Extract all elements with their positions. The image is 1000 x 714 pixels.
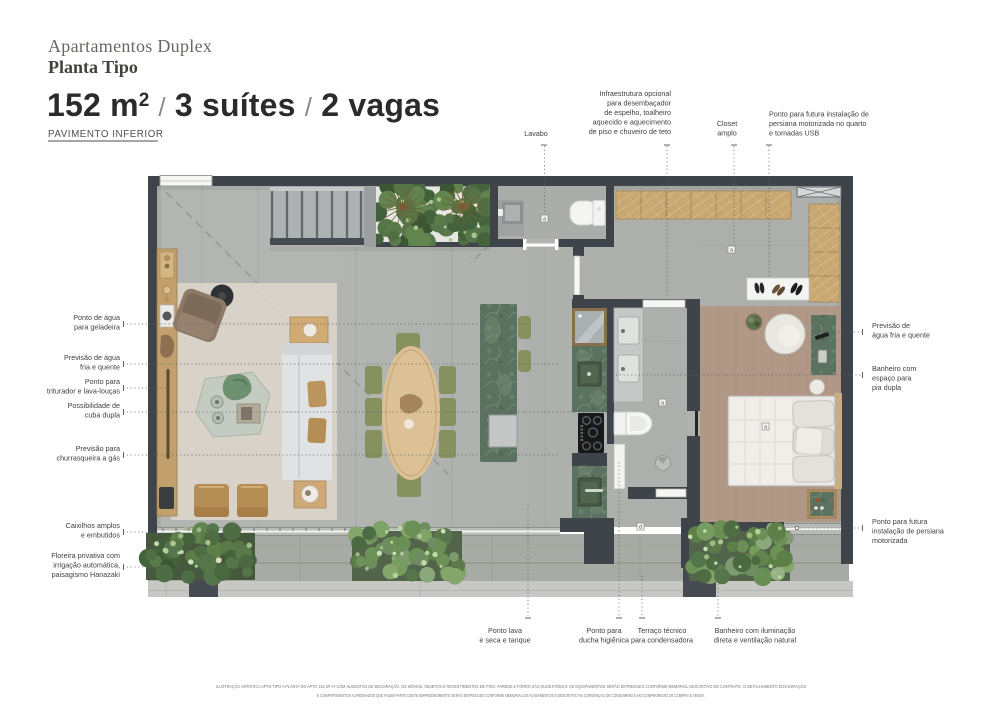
svg-text:Planta Tipo: Planta Tipo	[48, 57, 138, 77]
svg-text:de piso e chuveiro de teto: de piso e chuveiro de teto	[589, 127, 671, 136]
svg-text:Ponto de água: Ponto de água	[73, 313, 120, 322]
svg-text:Floreira privativa com: Floreira privativa com	[51, 551, 120, 560]
svg-text:a: a	[543, 216, 546, 222]
svg-text:paisagismo Hanazaki: paisagismo Hanazaki	[52, 570, 121, 579]
svg-text:Terraço técnico: Terraço técnico	[638, 626, 687, 635]
svg-text:Caixilhos amplos: Caixilhos amplos	[66, 521, 121, 530]
svg-text:ILUSTRAÇÃO ARTÍSTICA APTO TIPO: ILUSTRAÇÃO ARTÍSTICA APTO TIPO A PLANTA …	[216, 683, 807, 690]
svg-text:e tomadas USB: e tomadas USB	[769, 129, 820, 138]
svg-text:irrigação automática,: irrigação automática,	[53, 561, 120, 570]
svg-text:e seca e tanque: e seca e tanque	[479, 636, 530, 645]
svg-text:direta e ventilação natural: direta e ventilação natural	[714, 636, 797, 645]
svg-text:Ponto para: Ponto para	[85, 377, 120, 386]
svg-text:e embutidos: e embutidos	[81, 531, 121, 540]
svg-text:cuba dupla: cuba dupla	[85, 411, 120, 420]
svg-text:Banheiro com iluminação: Banheiro com iluminação	[715, 626, 796, 635]
svg-text:Ponto para: Ponto para	[586, 626, 621, 635]
svg-text:motorizada: motorizada	[872, 536, 908, 545]
svg-text:Apartamentos Duplex: Apartamentos Duplex	[48, 36, 212, 56]
svg-text:instalação de persiana: instalação de persiana	[872, 527, 944, 536]
svg-text:ducha higiênica: ducha higiênica	[579, 636, 629, 645]
svg-text:a: a	[764, 424, 767, 430]
svg-text:PAVIMENTO INFERIOR: PAVIMENTO INFERIOR	[48, 129, 164, 140]
svg-text:de espelho, toalheiro: de espelho, toalheiro	[604, 108, 671, 117]
svg-text:persiana motorizada no quarto: persiana motorizada no quarto	[769, 119, 867, 128]
svg-text:Ponto para futura instalação d: Ponto para futura instalação de	[769, 110, 869, 119]
svg-text:Lavabo: Lavabo	[524, 129, 548, 138]
svg-text:Previsão de água: Previsão de água	[64, 353, 120, 362]
svg-text:d: d	[639, 524, 642, 530]
svg-text:Ponto para futura: Ponto para futura	[872, 517, 928, 526]
svg-text:Infraestrutura opcional: Infraestrutura opcional	[599, 89, 671, 98]
svg-text:amplo: amplo	[717, 129, 737, 138]
svg-text:pia dupla: pia dupla	[872, 383, 901, 392]
svg-text:para desembaçador: para desembaçador	[607, 99, 672, 108]
svg-text:Previsão de: Previsão de	[872, 321, 910, 330]
svg-text:E COMPARTIMENTOS AJARDINADOS Q: E COMPARTIMENTOS AJARDINADOS QUE FAZEM P…	[317, 692, 705, 699]
svg-text:para condensadora: para condensadora	[631, 636, 693, 645]
svg-text:152 m2 / 3 suítes / 2 vaga: 152 m2 / 3 suítes / 2 vagas	[47, 87, 440, 123]
svg-text:Previsão para: Previsão para	[76, 444, 120, 453]
svg-text:churrasqueira a gás: churrasqueira a gás	[56, 454, 120, 463]
svg-text:espaço para: espaço para	[872, 374, 912, 383]
svg-text:água fria e quente: água fria e quente	[872, 331, 930, 340]
svg-text:a: a	[661, 400, 664, 406]
svg-text:Banheiro com: Banheiro com	[872, 364, 916, 373]
svg-text:para geladeira: para geladeira	[74, 323, 120, 332]
svg-text:fria e quente: fria e quente	[80, 363, 120, 372]
svg-text:Possibilidade de: Possibilidade de	[68, 401, 120, 410]
svg-text:aquecido e aquecimento: aquecido e aquecimento	[593, 118, 671, 127]
svg-text:a: a	[730, 247, 733, 253]
svg-text:Ponto lava: Ponto lava	[488, 626, 522, 635]
svg-text:triturador e lava-louças: triturador e lava-louças	[47, 387, 121, 396]
svg-text:Closet: Closet	[717, 119, 737, 128]
